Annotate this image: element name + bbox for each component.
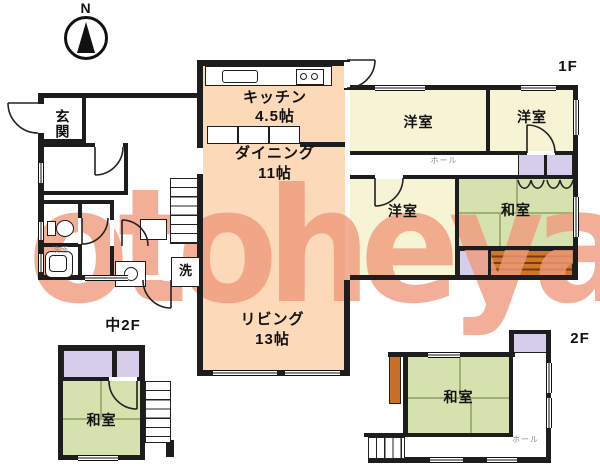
vanity-sink <box>115 261 146 287</box>
stairs-m2 <box>145 381 171 443</box>
door-opening <box>109 377 137 381</box>
japanese-room-2f-label: 和室 <box>408 390 509 405</box>
counter-divider <box>237 127 239 143</box>
window <box>521 85 556 91</box>
window <box>546 363 552 393</box>
wall <box>509 352 513 437</box>
japanese-room-m2-label: 和室 <box>63 413 140 428</box>
wall <box>488 250 491 276</box>
kitchen-size-label: 4.5帖 <box>205 109 345 126</box>
entrance-door-arc <box>8 103 38 133</box>
compass-needle-icon <box>77 22 95 53</box>
closet-m2-left <box>63 350 113 378</box>
compass-icon <box>64 16 108 60</box>
stove-burner-icon <box>311 73 318 80</box>
toilet-tank-icon <box>47 221 56 236</box>
floor-label-1f: 1F <box>548 59 588 76</box>
window <box>85 275 128 281</box>
western-room-b-label: 洋室 <box>490 110 574 125</box>
wall <box>509 330 550 334</box>
closet-m2-right <box>116 350 140 378</box>
toilet-bowl-icon <box>56 220 74 237</box>
wall <box>82 97 86 143</box>
stove <box>296 69 324 85</box>
dining-size-label: 11帖 <box>205 166 345 183</box>
washroom-label: 洗面 <box>44 247 78 255</box>
wall <box>112 350 116 378</box>
hall-2f-label: ホール <box>503 436 548 445</box>
closet-divider <box>544 153 547 177</box>
window <box>546 398 552 428</box>
wall <box>38 93 198 98</box>
floor-label-2f: 2F <box>563 331 597 348</box>
window <box>38 254 44 272</box>
wall <box>58 345 145 350</box>
window <box>573 197 579 237</box>
door-opening <box>375 175 403 179</box>
window <box>78 455 118 461</box>
window <box>285 370 340 376</box>
stove-burner-icon <box>300 73 307 80</box>
window <box>428 352 460 358</box>
window <box>213 370 277 376</box>
door-opening <box>78 218 82 244</box>
wall <box>459 246 573 250</box>
kitchen-lower-counter <box>207 126 300 144</box>
wall <box>403 433 513 437</box>
door-opening <box>110 220 114 246</box>
door-opening <box>38 104 44 133</box>
balcony-strip-2f <box>389 356 401 404</box>
stairs-2f <box>368 437 405 459</box>
living-label: リビング <box>200 312 345 329</box>
compass-north-label: N <box>76 1 96 16</box>
hall-1f-label: ホール <box>420 157 468 166</box>
stairs-1f <box>170 178 198 244</box>
kitchen-label: キッチン <box>205 90 345 107</box>
door-opening <box>344 62 350 88</box>
window <box>375 85 425 91</box>
wall <box>38 200 114 204</box>
window <box>38 222 44 240</box>
door-opening <box>95 143 123 147</box>
window <box>487 457 517 463</box>
wall <box>455 178 459 280</box>
kitchen-side-door-arc <box>347 60 375 88</box>
door-opening <box>527 151 555 155</box>
living-size-label: 13帖 <box>200 332 345 349</box>
window <box>38 163 44 183</box>
dining-label: ダイニング <box>205 146 345 163</box>
japanese-room-1f-label: 和室 <box>459 203 573 218</box>
wall <box>38 191 128 195</box>
washing-machine-label: 洗 <box>171 264 200 278</box>
western-room-a-label: 洋室 <box>350 115 487 130</box>
wall <box>58 345 63 460</box>
door-opening <box>143 275 171 280</box>
bathtub-inner <box>49 255 67 272</box>
counter-divider <box>268 127 270 143</box>
floor-plan: otoheya <box>0 0 600 476</box>
western-room-c-label: 洋室 <box>350 204 456 219</box>
window <box>430 457 463 463</box>
bathtub-icon <box>45 251 73 278</box>
closet-box <box>140 219 167 240</box>
wall <box>350 275 578 280</box>
door-opening <box>197 148 203 174</box>
wall <box>124 147 128 195</box>
floor-label-m2: 中2F <box>98 318 148 335</box>
kitchen-sink <box>222 70 258 83</box>
entrance-label: 玄関 <box>54 102 69 146</box>
